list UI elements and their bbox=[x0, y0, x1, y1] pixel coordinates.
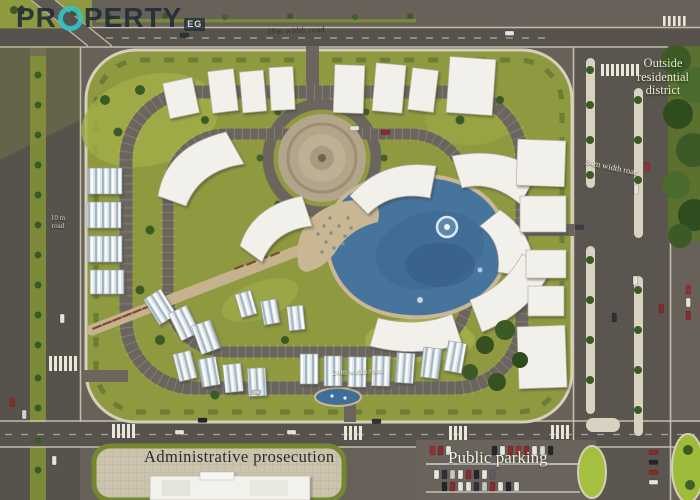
public-parking-area bbox=[416, 440, 596, 500]
property-eg-logo: PR PERTY EG bbox=[16, 4, 205, 32]
admin-building bbox=[150, 472, 310, 500]
residential-compound bbox=[71, 46, 574, 422]
logo-eg-badge: EG bbox=[184, 18, 205, 31]
logo-suffix: PERTY bbox=[84, 4, 182, 32]
house-circle-icon bbox=[58, 6, 83, 31]
master-plan-screenshot: 39m width road Outside residential distr… bbox=[0, 0, 700, 500]
admin-prosecution-area bbox=[94, 446, 344, 500]
master-plan-art bbox=[0, 0, 700, 500]
small-pool bbox=[315, 388, 361, 406]
